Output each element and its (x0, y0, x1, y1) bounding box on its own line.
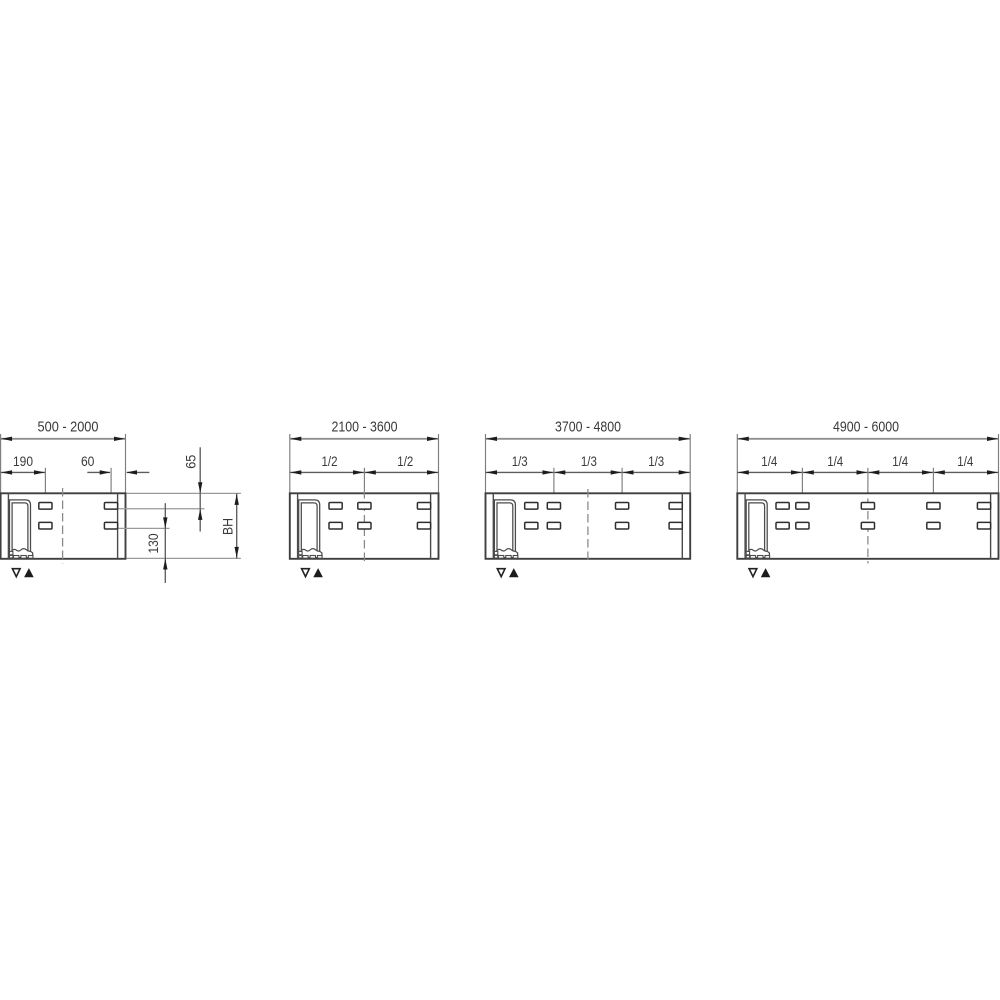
svg-text:1/4: 1/4 (892, 454, 908, 469)
svg-text:2100 - 3600: 2100 - 3600 (332, 419, 398, 436)
svg-text:65: 65 (183, 455, 198, 469)
svg-text:190: 190 (13, 454, 33, 469)
svg-text:1/2: 1/2 (322, 454, 338, 469)
svg-text:130: 130 (146, 534, 161, 554)
svg-text:1/3: 1/3 (648, 454, 664, 469)
svg-text:1/4: 1/4 (957, 454, 973, 469)
svg-text:1/3: 1/3 (512, 454, 528, 469)
svg-text:500 - 2000: 500 - 2000 (38, 419, 99, 436)
svg-text:1/4: 1/4 (761, 454, 777, 469)
svg-text:1/3: 1/3 (581, 454, 597, 469)
svg-text:4900 - 6000: 4900 - 6000 (833, 419, 899, 436)
svg-text:1/2: 1/2 (397, 454, 413, 469)
svg-text:1/4: 1/4 (827, 454, 843, 469)
svg-text:BH: BH (221, 518, 236, 535)
svg-text:3700 - 4800: 3700 - 4800 (555, 419, 621, 436)
svg-text:60: 60 (81, 454, 95, 469)
